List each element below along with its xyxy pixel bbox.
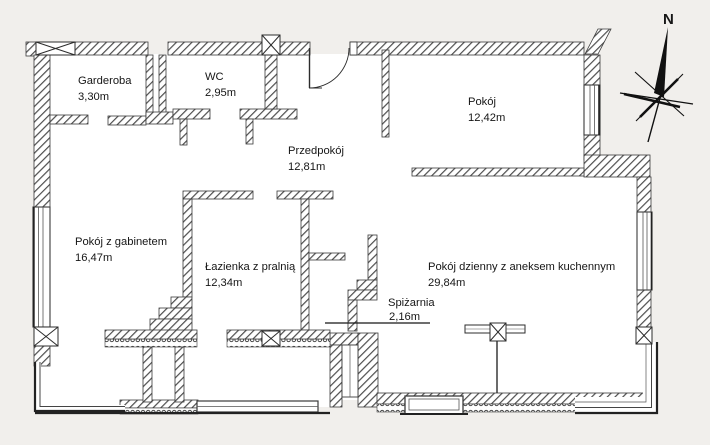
floor-plan-svg: Garderoba 3,30m WC 2,95m Pokój 12,42m Pr… — [0, 0, 710, 445]
column-top-middle — [262, 35, 280, 55]
room-label-przedpokoj: Przedpokój — [288, 145, 344, 157]
room-area-garderoba: 3,30m — [78, 91, 109, 103]
room-area-lazienka: 12,34m — [205, 277, 242, 289]
room-area-przedpokoj: 12,81m — [288, 161, 325, 173]
room-label-pokoj: Pokój — [468, 96, 496, 108]
column-island — [490, 323, 506, 341]
room-label-garderoba: Garderoba — [78, 75, 132, 87]
room-label-wc: WC — [205, 71, 224, 83]
column-top-left — [36, 42, 75, 55]
column-bottom-middle — [262, 331, 280, 346]
room-area-pokoj: 12,42m — [468, 112, 505, 124]
room-area-spizarnia: 2,16m — [389, 311, 420, 323]
column-right-lower — [636, 327, 652, 344]
room-label-pokoj-dzienny: Pokój dzienny z aneksem kuchennym — [428, 261, 615, 273]
column-left-lower — [34, 327, 58, 346]
room-label-lazienka: Łazienka z pralnią — [205, 261, 296, 273]
room-label-spizarnia: Spiżarnia — [388, 297, 435, 309]
floor-plan-page: Garderoba 3,30m WC 2,95m Pokój 12,42m Pr… — [0, 0, 710, 445]
room-label-pokoj-z-gabinetem: Pokój z gabinetem — [75, 236, 167, 248]
room-area-wc: 2,95m — [205, 87, 236, 99]
compass-north-label: N — [663, 11, 674, 28]
room-area-pokoj-z-gabinetem: 16,47m — [75, 252, 112, 264]
room-area-pokoj-dzienny: 29,84m — [428, 277, 465, 289]
floor-lower-strip — [40, 347, 335, 407]
